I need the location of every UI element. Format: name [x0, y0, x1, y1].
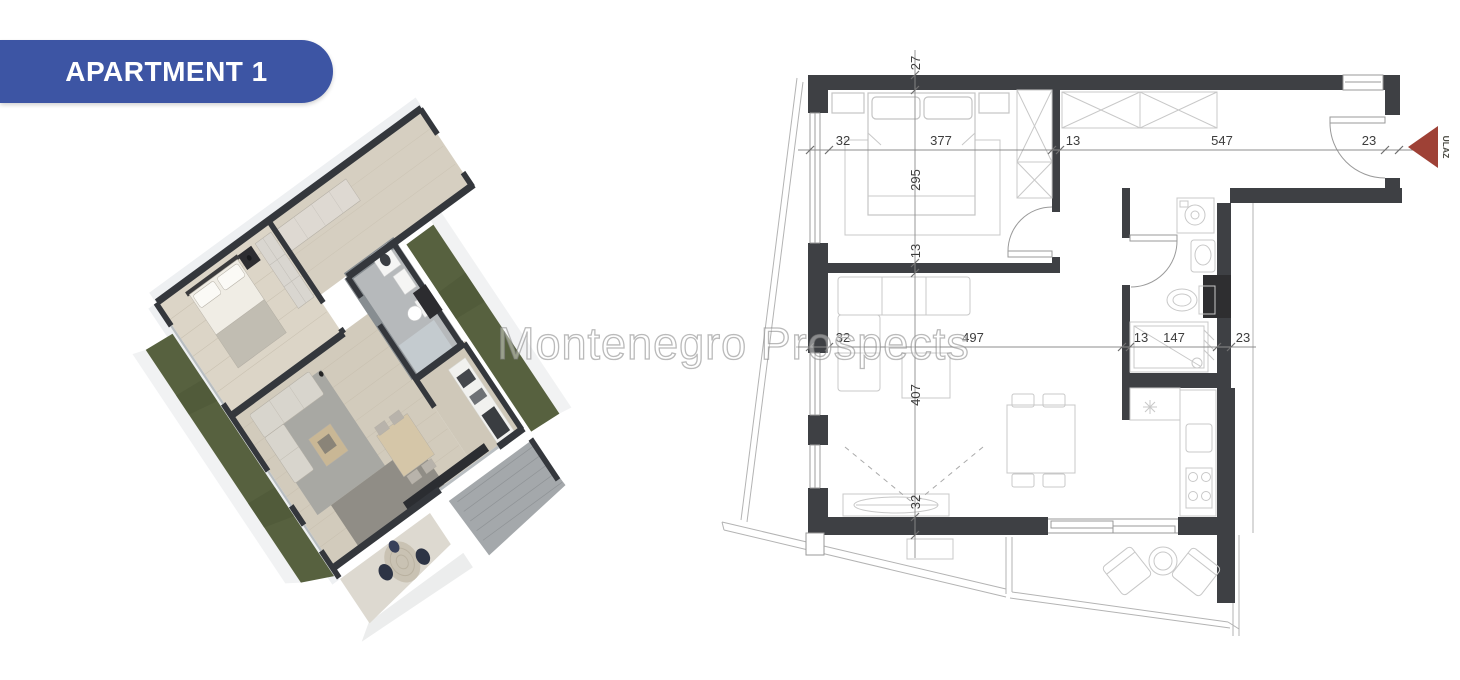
dim-label: 377	[930, 133, 952, 148]
dim-label: 407	[908, 384, 923, 406]
bathroom-door-arc	[1131, 241, 1177, 287]
pillow	[924, 97, 972, 119]
dim-label: 147	[1163, 330, 1185, 345]
apartment-badge-label: APARTMENT 1	[65, 56, 268, 88]
dim-label: 547	[1211, 133, 1233, 148]
storage-niche	[1130, 388, 1180, 420]
kitchen-sink	[1186, 424, 1212, 452]
sliding-door	[1048, 519, 1178, 533]
nightstand	[832, 93, 864, 113]
entrance-marker: ULAZ	[1408, 126, 1451, 168]
entrance-door-leaf	[1330, 117, 1385, 123]
entrance-arrow-icon	[1408, 126, 1438, 168]
dim-label: 32	[908, 495, 923, 509]
lounger	[843, 494, 949, 516]
dim-label: 13	[1066, 133, 1080, 148]
balcony-mat	[907, 539, 953, 559]
apartment-3d-render	[130, 85, 690, 645]
nightstand	[979, 93, 1009, 113]
pillow	[872, 97, 920, 119]
dining-set	[1007, 394, 1075, 487]
dim-label: 23	[1236, 330, 1250, 345]
dim-label: 13	[1134, 330, 1148, 345]
dim-label: 23	[1362, 133, 1376, 148]
floor-plan-2d: 32 377 13 547 23 27 295 13 407 32 32	[700, 40, 1460, 660]
bedroom-door-arc	[1008, 207, 1052, 251]
entrance-door-arc	[1330, 123, 1385, 178]
wardrobe	[1017, 90, 1052, 198]
entrance-label: ULAZ	[1441, 136, 1451, 159]
door-swing-dashes	[845, 447, 983, 503]
step	[806, 533, 824, 555]
bedroom-door-leaf	[1008, 251, 1052, 257]
bathroom-door-leaf	[1130, 235, 1177, 241]
kitchen-counter	[1180, 390, 1216, 516]
dim-label: 497	[962, 330, 984, 345]
washing-machine	[1177, 198, 1214, 233]
bathroom-sink	[1191, 240, 1215, 272]
dim-label: 32	[836, 330, 850, 345]
dim-label: 27	[908, 56, 923, 70]
hall-closet	[1062, 92, 1217, 128]
dim-label: 32	[836, 133, 850, 148]
balcony-furniture	[1102, 546, 1222, 598]
page: APARTMENT 1	[0, 0, 1460, 680]
dim-label: 13	[908, 244, 923, 258]
dim-label: 295	[908, 169, 923, 191]
shaft	[1203, 275, 1231, 318]
